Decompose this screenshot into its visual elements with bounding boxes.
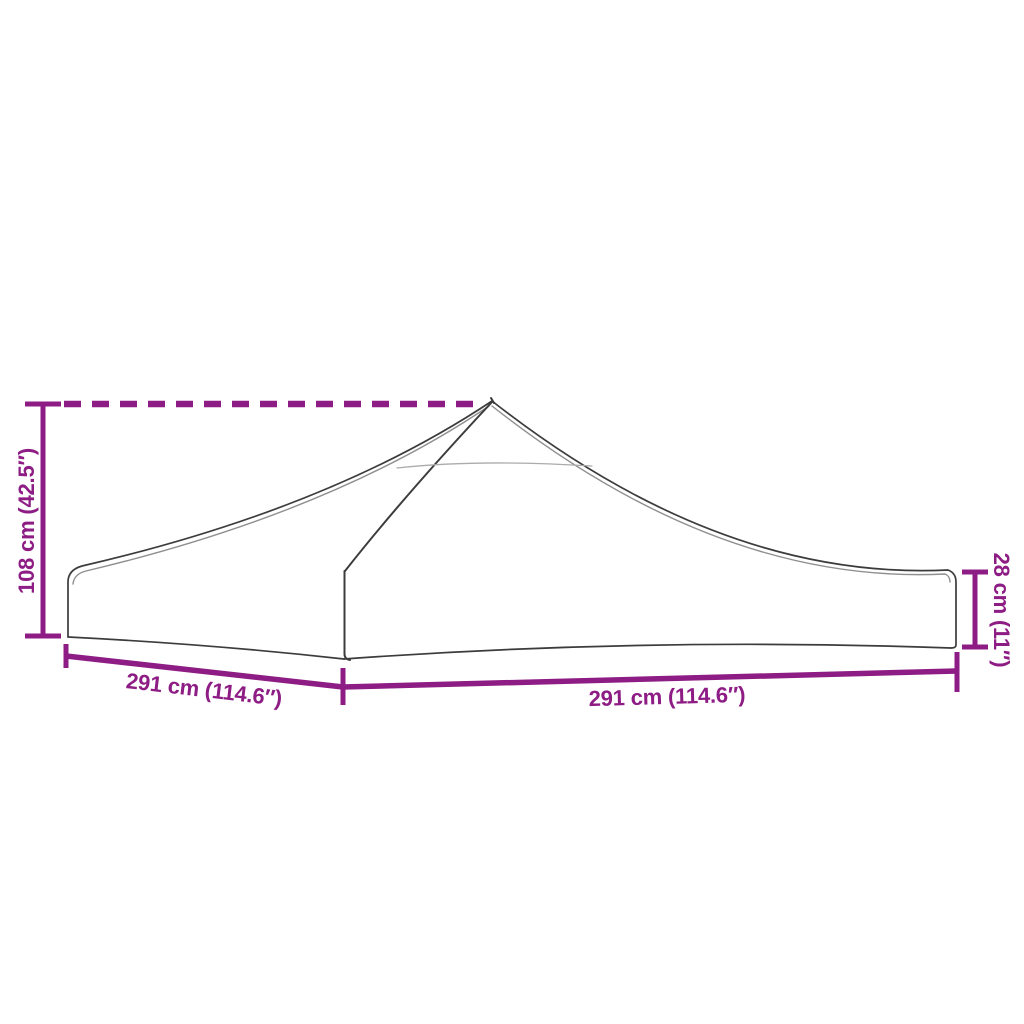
canopy-front-seam-line <box>345 402 492 571</box>
dimension-lines <box>25 404 988 705</box>
dimension-label-height-right: 28 cm (11″) <box>988 553 1014 668</box>
canopy-right-ridge-inner-line <box>492 406 950 582</box>
canopy-right-ridge-line <box>492 401 956 648</box>
canopy-back-ridge-line <box>397 463 592 468</box>
dimension-label-height-left: 108 cm (42.5″) <box>14 448 40 594</box>
canopy-left-ridge-line <box>68 401 492 637</box>
canopy-hem-left <box>68 637 344 659</box>
canopy-outline <box>68 398 956 660</box>
canopy-left-ridge-inner-line <box>73 406 489 584</box>
canopy-center-corner-edge <box>345 571 351 660</box>
dimension-label-width-front-right: 291 cm (114.6″) <box>588 682 745 712</box>
product-dimension-diagram: 108 cm (42.5″) 28 cm (11″) 291 cm (114.6… <box>0 0 1024 1024</box>
canopy-hem-right <box>344 644 951 659</box>
canopy-drawing <box>0 0 1024 1024</box>
